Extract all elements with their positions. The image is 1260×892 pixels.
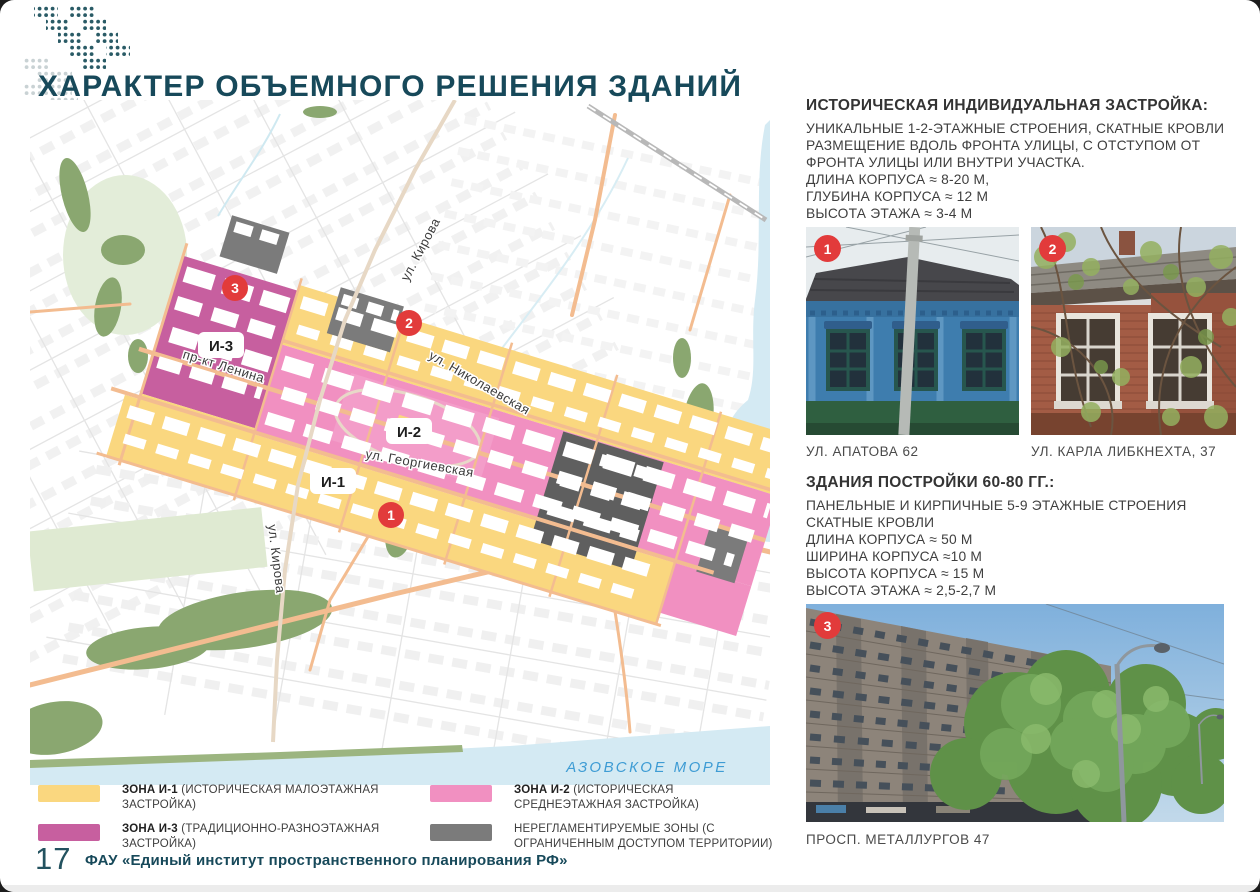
- text-line: ВЫСОТА ЭТАЖА ≈ 2,5-2,7 М: [806, 582, 1238, 599]
- footer-institute: ФАУ «Единый институт пространственного п…: [85, 852, 568, 869]
- bottom-edge: [0, 885, 1260, 892]
- map-marker-2: 2: [396, 310, 422, 336]
- photo-apatova-62: 1: [806, 227, 1019, 435]
- legend-item-i2: ЗОНА И-2 (ИСТОРИЧЕСКАЯ СРЕДНЕЭТАЖНАЯ ЗАС…: [430, 783, 778, 813]
- section-heading-historic: ИСТОРИЧЕСКАЯ ИНДИВИДУАЛЬНАЯ ЗАСТРОЙКА:: [806, 97, 1238, 115]
- photo-caption-3: ПРОСП. МЕТАЛЛУРГОВ 47: [806, 832, 1238, 847]
- text-line: ГЛУБИНА КОРПУСА ≈ 12 М: [806, 188, 1238, 205]
- text-line: ШИРИНА КОРПУСА ≈10 М: [806, 548, 1238, 565]
- photo-badge-2: 2: [1039, 235, 1066, 262]
- svg-text:И-3: И-3: [209, 338, 233, 355]
- legend-swatch-i2: [430, 785, 492, 802]
- photo-panel-building: [806, 604, 1224, 822]
- text-line: ПАНЕЛЬНЫЕ И КИРПИЧНЫЕ 5-9 ЭТАЖНЫЕ СТРОЕН…: [806, 497, 1238, 514]
- legend-item-i3: ЗОНА И-3 (ТРАДИЦИОННО-РАЗНОЭТАЖНАЯ ЗАСТР…: [38, 822, 430, 852]
- text-line: ВЫСОТА КОРПУСА ≈ 15 М: [806, 565, 1238, 582]
- text-line: ВЫСОТА ЭТАЖА ≈ 3-4 М: [806, 205, 1238, 222]
- map-legend: ЗОНА И-1 (ИСТОРИЧЕСКАЯ МАЛОЭТАЖНАЯ ЗАСТР…: [38, 783, 778, 852]
- text-line: СКАТНЫЕ КРОВЛИ: [806, 514, 1238, 531]
- legend-item-i1: ЗОНА И-1 (ИСТОРИЧЕСКАЯ МАЛОЭТАЖНАЯ ЗАСТР…: [38, 783, 430, 813]
- zone-label-i1: И-1: [310, 468, 356, 494]
- section-heading-6080: ЗДАНИЯ ПОСТРОЙКИ 60-80 ГГ.:: [806, 474, 1238, 492]
- text-line: УНИКАЛЬНЫЕ 1-2-ЭТАЖНЫЕ СТРОЕНИЯ, СКАТНЫЕ…: [806, 120, 1238, 137]
- map-marker-3: 3: [222, 275, 248, 301]
- photo-caption-1: УЛ. АПАТОВА 62: [806, 444, 1031, 459]
- map-marker-1: 1: [378, 502, 404, 528]
- svg-text:И-2: И-2: [397, 424, 421, 441]
- zone-label-i2: И-2: [386, 418, 432, 444]
- legend-swatch-i1: [38, 785, 100, 802]
- svg-text:3: 3: [231, 280, 239, 296]
- svg-text:2: 2: [405, 315, 413, 331]
- text-line: ДЛИНА КОРПУСА ≈ 50 М: [806, 531, 1238, 548]
- svg-text:1: 1: [387, 507, 395, 523]
- right-column: ИСТОРИЧЕСКАЯ ИНДИВИДУАЛЬНАЯ ЗАСТРОЙКА: У…: [806, 0, 1238, 847]
- legend-swatch-i3: [38, 824, 100, 841]
- page-title: ХАРАКТЕР ОБЪЕМНОГО РЕШЕНИЯ ЗДАНИЙ: [38, 70, 742, 104]
- zone-label-i3: И-3: [198, 332, 244, 358]
- photo-badge-3: 3: [814, 612, 841, 639]
- text-line: РАЗМЕЩЕНИЕ ВДОЛЬ ФРОНТА УЛИЦЫ, С ОТСТУПО…: [806, 137, 1238, 154]
- photo-metallurgov-47: 3: [806, 604, 1224, 822]
- photo-caption-2: УЛ. КАРЛА ЛИБКНЕХТА, 37: [1031, 444, 1216, 459]
- photo-badge-1: 1: [814, 235, 841, 262]
- legend-item-unregulated: НЕРЕГЛАМЕНТИРУЕМЫЕ ЗОНЫ (С ОГРАНИЧЕННЫМ …: [430, 822, 778, 852]
- slide-page: ХАРАКТЕР ОБЪЕМНОГО РЕШЕНИЯ ЗДАНИЙ: [0, 0, 1260, 892]
- photo-karla-libknehta-37: 2: [1031, 227, 1236, 435]
- photo-blue-house: [806, 227, 1019, 435]
- svg-text:И-1: И-1: [321, 474, 345, 491]
- sea-label: АЗОВСКОЕ МОРЕ: [565, 759, 728, 776]
- city-zoning-map: ул. Кирова ул. Николаевская пр-кт Ленина…: [30, 100, 770, 785]
- text-line: ДЛИНА КОРПУСА ≈ 8-20 М,: [806, 171, 1238, 188]
- legend-swatch-unregulated: [430, 824, 492, 841]
- page-number: 17: [35, 841, 71, 877]
- text-line: ФРОНТА УЛИЦЫ ИЛИ ВНУТРИ УЧАСТКА.: [806, 154, 1238, 171]
